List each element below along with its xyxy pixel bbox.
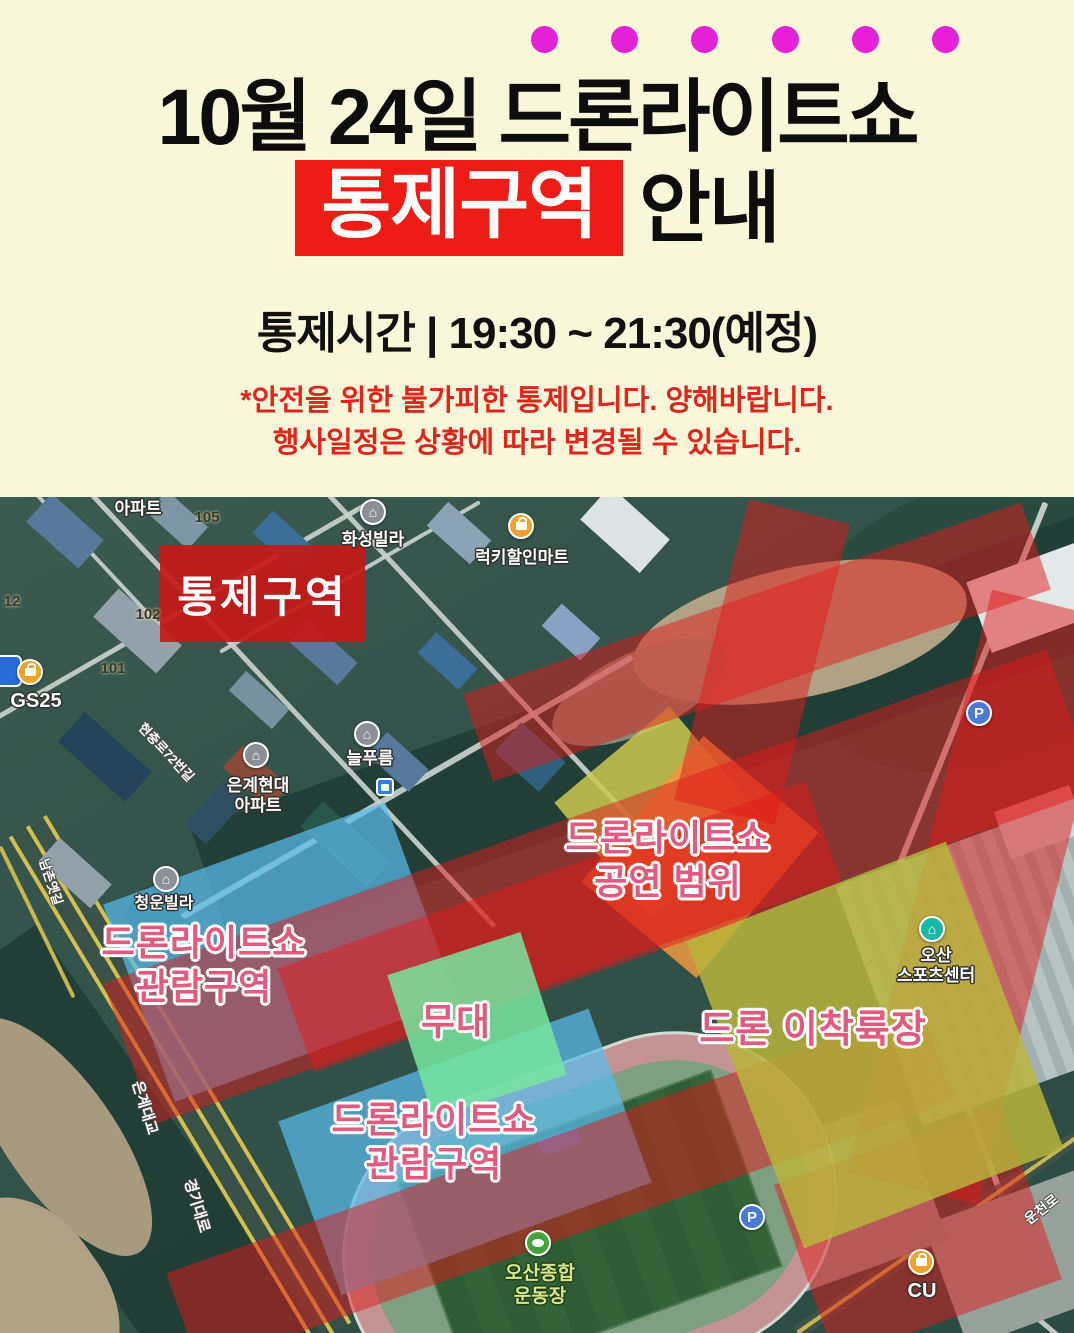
- mart-icon: [508, 513, 534, 539]
- dot-icon: [691, 26, 718, 53]
- poi-label-osan-stadium: 오산종합 운동장: [505, 1263, 575, 1309]
- page-title: 10월 24일 드론라이트쇼: [0, 52, 1074, 167]
- poi-label-gs25: GS25: [10, 689, 61, 713]
- building-icon: ⌂: [153, 866, 179, 892]
- building: [580, 497, 670, 573]
- satellite-map: 통제구역 ⌂ ⌂ ⌂ ⌂ ⌂ P P 아파트 화성빌라 럭키할인마트 GS25 …: [0, 497, 1074, 1333]
- parking-icon: P: [966, 700, 992, 726]
- mart-icon: [17, 659, 43, 685]
- parcel-number: 12: [4, 593, 21, 610]
- parcel-number: 105: [194, 509, 219, 526]
- subtitle-text: 안내: [639, 169, 779, 247]
- poi-label-cu: CU: [908, 1279, 937, 1303]
- notice-line-2: 행사일정은 상황에 따라 변경될 수 있습니다.: [0, 422, 1074, 464]
- dot-icon: [611, 26, 638, 53]
- poi-label-cheongun-villa: 청운빌라: [135, 894, 194, 913]
- parcel-number: 101: [100, 660, 125, 677]
- poi-label-neulpureum: 늘푸름: [347, 749, 394, 769]
- zone-label-landing: 드론 이착륙장: [699, 1007, 926, 1053]
- zone-label-viewing-upper: 드론라이트쇼 관람구역: [102, 921, 307, 1009]
- zone-label-performance: 드론라이트쇼 공연 범위: [566, 816, 771, 904]
- zone-label-viewing-lower: 드론라이트쇼 관람구역: [332, 1098, 537, 1186]
- header: 10월 24일 드론라이트쇼 통제구역 안내 통제시간 | 19:30 ~ 21…: [0, 0, 1074, 497]
- parking-icon: P: [739, 1204, 765, 1230]
- poi-label-hwaseong-villa: 화성빌라: [342, 530, 405, 550]
- poi-label-apartment: 아파트: [115, 499, 162, 519]
- decorative-dots: [531, 26, 959, 53]
- building-icon: ⌂: [354, 721, 380, 747]
- parcel-number: 102: [135, 606, 160, 623]
- zone-label-stage: 무대: [421, 999, 491, 1044]
- building-icon: ⌂: [243, 742, 269, 768]
- poi-label-osan-sports-center: 오산 스포츠센터: [897, 946, 975, 987]
- control-zone-badge: 통제구역: [295, 160, 623, 256]
- poi-label-eungye-hyundai-apt: 은계현대 아파트: [227, 776, 290, 817]
- dot-icon: [531, 26, 558, 53]
- sports-center-icon: ⌂: [919, 916, 945, 942]
- dot-icon: [772, 26, 799, 53]
- notice-line-1: *안전을 위한 불가피한 통제입니다. 양해바랍니다.: [0, 380, 1074, 422]
- transit-icon: [376, 778, 394, 796]
- dot-icon: [852, 26, 879, 53]
- subtitle-row: 통제구역 안내: [0, 160, 1074, 256]
- notice-text: *안전을 위한 불가피한 통제입니다. 양해바랍니다. 행사일정은 상황에 따라…: [0, 380, 1074, 464]
- poster: 10월 24일 드론라이트쇼 통제구역 안내 통제시간 | 19:30 ~ 21…: [0, 0, 1074, 1333]
- stadium-icon: [525, 1230, 551, 1256]
- poi-label-lucky-mart: 럭키할인마트: [475, 548, 569, 568]
- mart-icon: [908, 1249, 934, 1275]
- building: [58, 712, 152, 802]
- control-time: 통제시간 | 19:30 ~ 21:30(예정): [0, 297, 1074, 361]
- dot-icon: [932, 26, 959, 53]
- building-icon: ⌂: [360, 499, 386, 525]
- control-zone-map-badge: 통제구역: [160, 545, 365, 642]
